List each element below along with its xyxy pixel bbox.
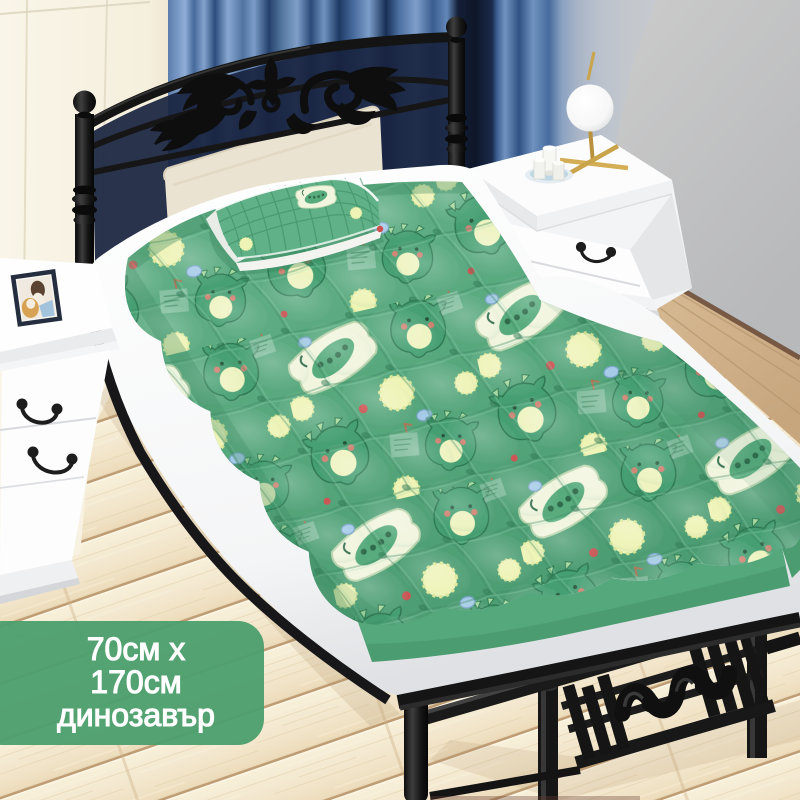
svg-text:70см x: 70см x: [87, 631, 185, 667]
svg-text:динозавър: динозавър: [57, 697, 215, 733]
svg-text:170см: 170см: [90, 664, 181, 700]
